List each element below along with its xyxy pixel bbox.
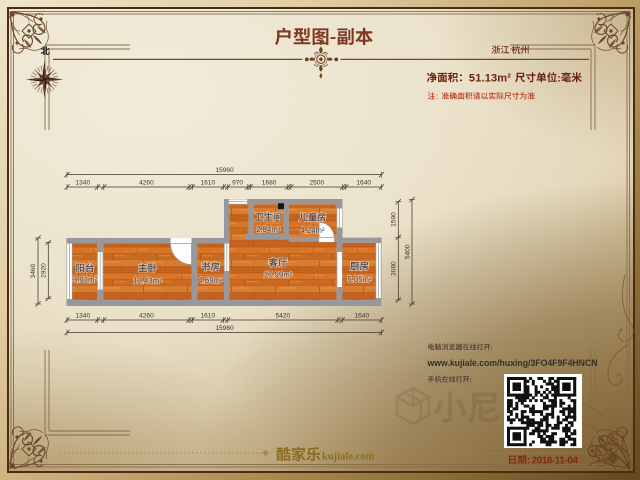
svg-text:1340: 1340 — [75, 179, 90, 186]
svg-text:3.91m²: 3.91m² — [73, 276, 98, 285]
svg-text:4260: 4260 — [139, 313, 154, 320]
svg-text:970: 970 — [232, 179, 243, 186]
svg-text:5.05m²: 5.05m² — [347, 275, 372, 284]
svg-text:4260: 4260 — [139, 179, 154, 186]
svg-text:1610: 1610 — [200, 313, 215, 320]
svg-text:3080: 3080 — [391, 261, 398, 276]
svg-text:4.24m²: 4.24m² — [300, 226, 325, 235]
svg-text:www.kujiale.com/huxing/3FO4F9F: www.kujiale.com/huxing/3FO4F9F4HNCN — [427, 358, 598, 369]
svg-text:kujiale.com: kujiale.com — [322, 452, 374, 463]
svg-text:1640: 1640 — [354, 313, 369, 320]
svg-text:1590: 1590 — [391, 212, 398, 227]
svg-text:15960: 15960 — [215, 167, 234, 174]
svg-text:2018-11-04: 2018-11-04 — [532, 455, 579, 466]
svg-text:1340: 1340 — [75, 313, 90, 320]
svg-text::: : — [557, 72, 561, 84]
svg-text:12.43m²: 12.43m² — [133, 277, 162, 286]
svg-text:1640: 1640 — [356, 179, 371, 186]
svg-text:17.99m²: 17.99m² — [264, 271, 293, 280]
svg-text:1680: 1680 — [262, 179, 277, 186]
svg-text:51.13m²: 51.13m² — [469, 72, 511, 84]
svg-text:5420: 5420 — [275, 313, 290, 320]
svg-text:1610: 1610 — [200, 179, 215, 186]
svg-text:15960: 15960 — [215, 325, 234, 332]
svg-text:2.84m²: 2.84m² — [256, 225, 281, 234]
svg-text::: : — [436, 92, 438, 101]
svg-text:4.69m²: 4.69m² — [198, 276, 223, 285]
svg-text:2920: 2920 — [41, 263, 48, 278]
svg-text:5400: 5400 — [404, 244, 411, 259]
svg-text:2500: 2500 — [309, 179, 324, 186]
svg-text:3460: 3460 — [30, 263, 37, 278]
